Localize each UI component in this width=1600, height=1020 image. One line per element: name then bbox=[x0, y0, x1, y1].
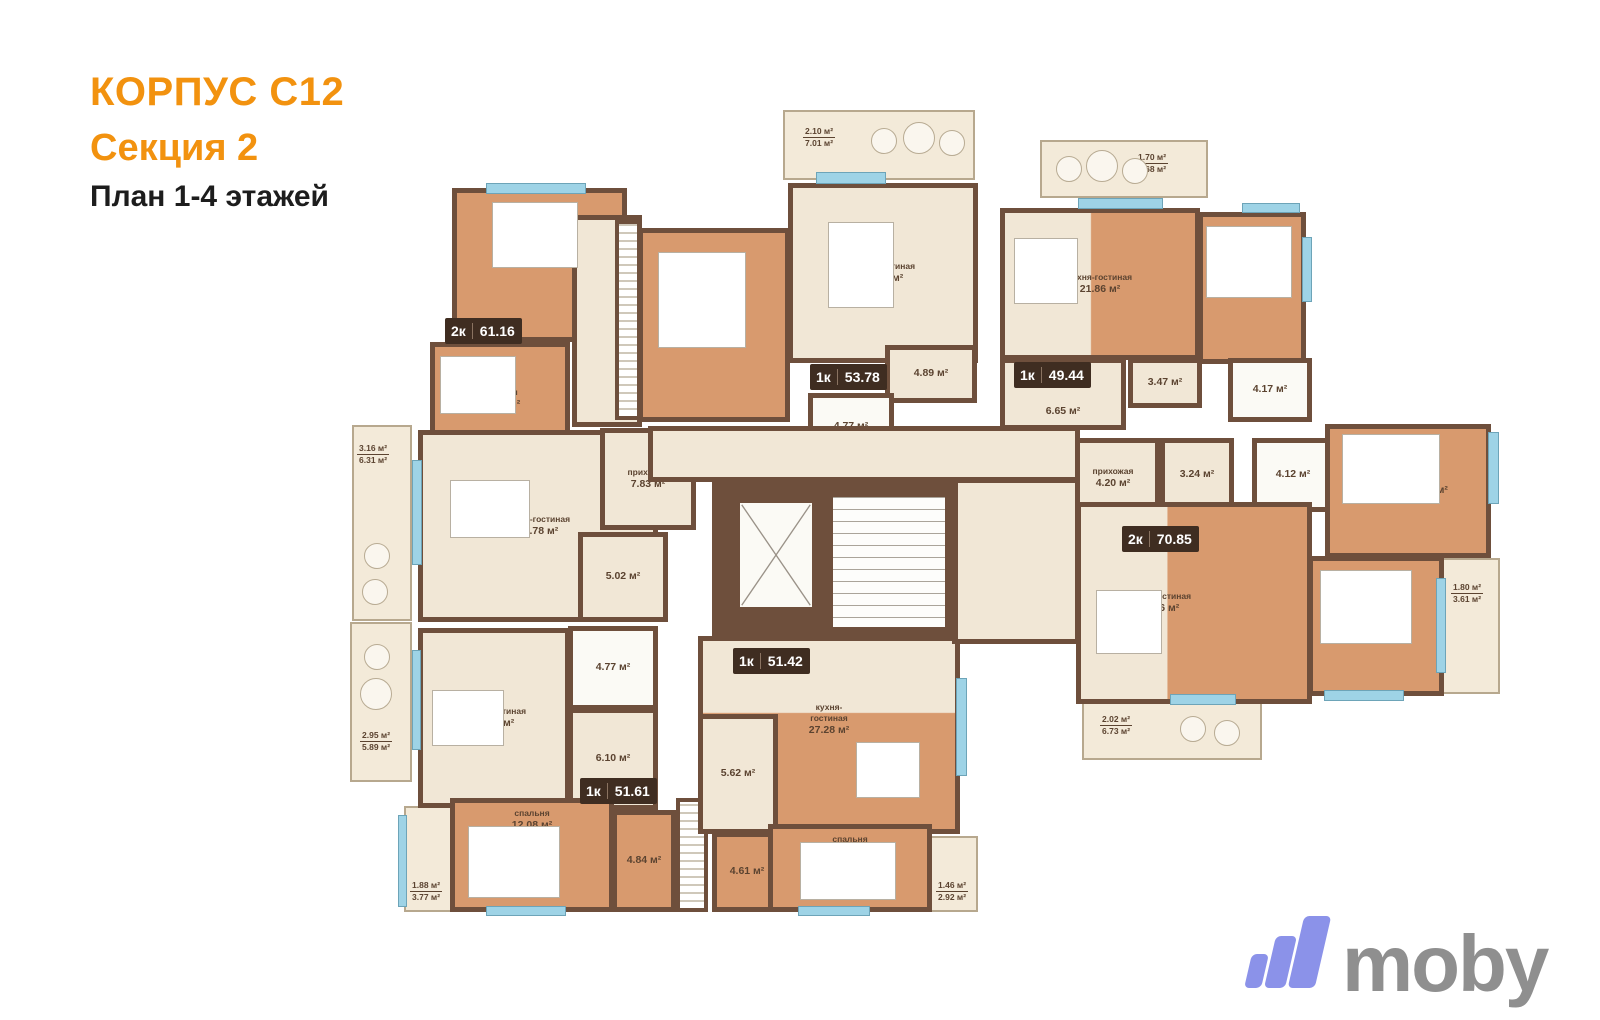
window bbox=[1488, 432, 1499, 504]
room-label: 6.65 м² bbox=[1046, 405, 1081, 419]
corridor bbox=[952, 478, 1080, 644]
bed-icon bbox=[492, 202, 578, 268]
bed-icon bbox=[658, 252, 746, 348]
table-icon bbox=[1096, 590, 1162, 654]
apartment-badge-2k-6116[interactable]: 2к 61.16 bbox=[445, 318, 522, 344]
room-label: 5.02 м² bbox=[606, 570, 641, 584]
elevator bbox=[735, 498, 817, 612]
logo-bar-icon bbox=[1288, 916, 1332, 988]
balcony-area-label: 2.95 м²5.89 м² bbox=[360, 730, 392, 754]
table-icon bbox=[1214, 720, 1240, 746]
room-label: 4.61 м² bbox=[730, 865, 765, 879]
table-icon bbox=[856, 742, 920, 798]
bed-icon bbox=[1342, 434, 1440, 504]
room-label: 4.89 м² bbox=[914, 367, 949, 381]
apartment-total-area: 61.16 bbox=[473, 323, 522, 339]
balcony: 1.88 м²3.77 м² bbox=[404, 806, 452, 912]
table-icon bbox=[432, 690, 504, 746]
window bbox=[1078, 198, 1163, 209]
window bbox=[816, 172, 886, 184]
room-label: 4.12 м² bbox=[1276, 468, 1311, 482]
room-bath-477b: 4.77 м² bbox=[568, 626, 658, 710]
window bbox=[1436, 578, 1446, 673]
table-icon bbox=[939, 130, 965, 156]
balcony: 2.02 м²6.73 м² bbox=[1082, 700, 1262, 760]
table-icon bbox=[450, 480, 530, 538]
table-icon bbox=[1122, 158, 1148, 184]
apartment-total-area: 51.61 bbox=[608, 783, 657, 799]
balcony: 1.70 м²5.68 м² bbox=[1040, 140, 1208, 198]
balcony-area-label: 1.46 м²2.92 м² bbox=[936, 880, 968, 904]
window bbox=[412, 460, 422, 565]
brand-name: moby bbox=[1342, 926, 1547, 1002]
window bbox=[1242, 203, 1300, 213]
table-icon bbox=[362, 579, 388, 605]
window bbox=[1324, 690, 1404, 701]
floor-plan-canvas: КОРПУС С12 Секция 2 План 1-4 этажей спал… bbox=[0, 0, 1600, 1020]
room-hall-484: 4.84 м² bbox=[612, 810, 676, 912]
apartment-badge-2k-7085[interactable]: 2к 70.85 bbox=[1122, 526, 1199, 552]
balcony: 1.80 м²3.61 м² bbox=[1442, 558, 1500, 694]
room-bath-417: 4.17 м² bbox=[1228, 358, 1312, 422]
room-label: 3.47 м² bbox=[1148, 376, 1183, 390]
bed-icon bbox=[440, 356, 516, 414]
table-icon bbox=[1056, 156, 1082, 182]
balcony: 3.16 м²6.31 м² bbox=[352, 425, 412, 621]
room-hall-489: 4.89 м² bbox=[885, 345, 977, 403]
table-icon bbox=[828, 222, 894, 308]
elevator-cross-icon bbox=[740, 503, 812, 607]
bed-icon bbox=[1206, 226, 1292, 298]
balcony-area-label: 2.10 м²7.01 м² bbox=[803, 126, 835, 150]
room-label: 4.77 м² bbox=[596, 661, 631, 675]
window bbox=[1170, 694, 1236, 705]
stairs bbox=[828, 492, 950, 632]
balcony: 2.95 м²5.89 м² bbox=[350, 622, 412, 782]
apartment-total-area: 70.85 bbox=[1150, 531, 1199, 547]
room-label: кухня-гостиная27.28 м² bbox=[799, 702, 859, 738]
table-icon bbox=[364, 543, 390, 569]
table-icon bbox=[1014, 238, 1078, 304]
apartment-type: 1к bbox=[1014, 367, 1042, 383]
room-hall-347: 3.47 м² bbox=[1128, 358, 1202, 408]
room-label: 3.24 м² bbox=[1180, 468, 1215, 482]
section-title: Секция 2 bbox=[90, 127, 344, 170]
balcony-area-label: 1.88 м²3.77 м² bbox=[410, 880, 442, 904]
window bbox=[412, 650, 421, 750]
room-label: 5.62 м² bbox=[721, 767, 756, 781]
balcony-area-label: 3.16 м²6.31 м² bbox=[357, 443, 389, 467]
bed-icon bbox=[1320, 570, 1412, 644]
balcony: 1.46 м²2.92 м² bbox=[930, 836, 978, 912]
table-icon bbox=[1180, 716, 1206, 742]
table-icon bbox=[871, 128, 897, 154]
table-icon bbox=[1086, 150, 1118, 182]
apartment-total-area: 53.78 bbox=[838, 369, 887, 385]
moby-logo: moby bbox=[1248, 916, 1547, 1002]
window bbox=[486, 183, 586, 194]
apartment-total-area: 51.42 bbox=[761, 653, 810, 669]
moby-logo-icon bbox=[1248, 916, 1328, 988]
building-title: КОРПУС С12 bbox=[90, 70, 344, 115]
floors-subtitle: План 1-4 этажей bbox=[90, 180, 344, 214]
table-icon bbox=[364, 644, 390, 670]
apartment-type: 1к bbox=[580, 783, 608, 799]
corridor bbox=[648, 426, 1080, 482]
apartment-type: 1к bbox=[810, 369, 838, 385]
room-label: 6.10 м² bbox=[596, 752, 631, 766]
room-label: 4.17 м² bbox=[1253, 383, 1288, 397]
window bbox=[486, 906, 566, 916]
bed-icon bbox=[468, 826, 560, 898]
window bbox=[398, 815, 407, 907]
window bbox=[798, 906, 870, 916]
balcony: 2.10 м²7.01 м² bbox=[783, 110, 975, 180]
window bbox=[1302, 237, 1312, 302]
window bbox=[956, 678, 967, 776]
apartment-type: 2к bbox=[1122, 531, 1150, 547]
bed-icon bbox=[800, 842, 896, 900]
apartment-badge-1k-4944[interactable]: 1к 49.44 bbox=[1014, 362, 1091, 388]
apartment-type: 1к bbox=[733, 653, 761, 669]
apartment-badge-1k-5142[interactable]: 1к 51.42 bbox=[733, 648, 810, 674]
apartment-total-area: 49.44 bbox=[1042, 367, 1091, 383]
apartment-badge-1k-5161[interactable]: 1к 51.61 bbox=[580, 778, 657, 804]
apartment-type: 2к bbox=[445, 323, 473, 339]
balcony-area-label: 2.02 м²6.73 м² bbox=[1100, 714, 1132, 738]
table-icon bbox=[903, 122, 935, 154]
apartment-badge-1k-5378[interactable]: 1к 53.78 bbox=[810, 364, 887, 390]
plan-title-block: КОРПУС С12 Секция 2 План 1-4 этажей bbox=[90, 70, 344, 214]
table-icon bbox=[360, 678, 392, 710]
room-bath-412: 4.12 м² bbox=[1252, 438, 1334, 512]
room-label: прихожая4.20 м² bbox=[1093, 466, 1134, 491]
room-label: 4.84 м² bbox=[627, 854, 662, 868]
balcony-area-label: 1.80 м²3.61 м² bbox=[1451, 582, 1483, 606]
room-bath-562: 5.62 м² bbox=[698, 714, 778, 834]
room-bath-324: 3.24 м² bbox=[1160, 438, 1234, 512]
room-bath-502: 5.02 м² bbox=[578, 532, 668, 622]
